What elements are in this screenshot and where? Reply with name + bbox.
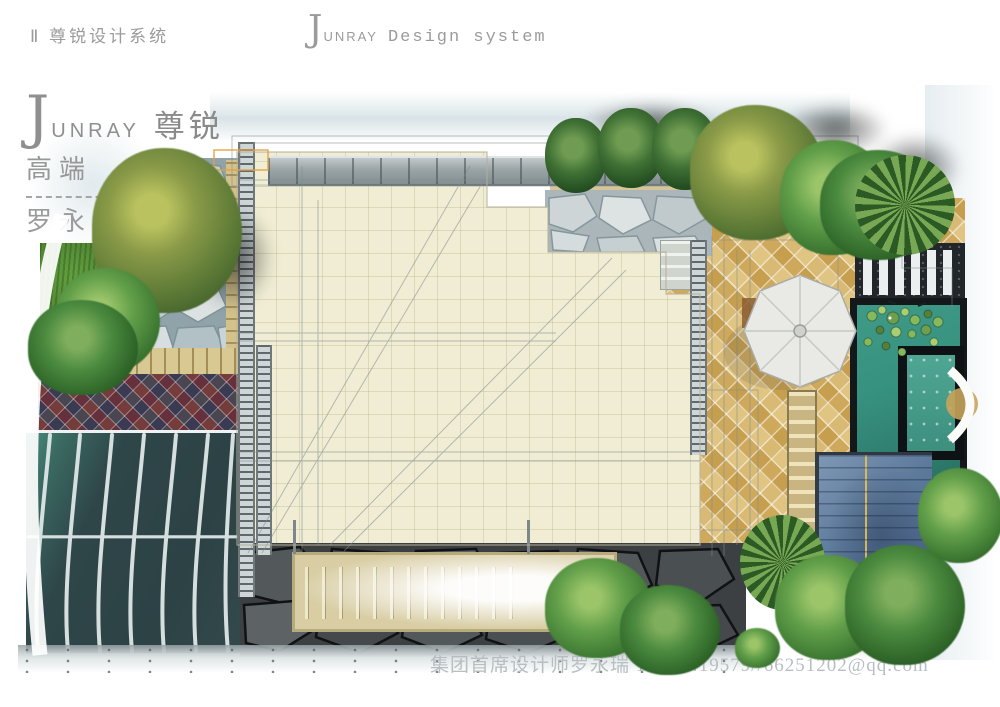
watermark-name: UNRAY	[51, 121, 140, 141]
tree	[620, 585, 720, 675]
stair-ladder	[256, 345, 272, 555]
glass-canopy	[26, 430, 240, 656]
shrub	[28, 300, 138, 395]
brand-initial: J	[308, 12, 322, 48]
watermark-initial: J	[26, 88, 49, 146]
watermark-cn-name: 尊锐	[154, 111, 224, 142]
brand-tagline: Design system	[388, 28, 547, 47]
brand-title: JUNRAY Design system	[308, 12, 547, 48]
brand-name: UNRAY	[323, 29, 378, 44]
spa-pool	[898, 346, 964, 460]
tree	[845, 545, 965, 665]
design-plan-page: Ⅱ 尊锐设计系统 JUNRAY Design system JUNRAY 尊锐 …	[0, 0, 1000, 707]
stair-ladder	[690, 240, 707, 455]
canopy-ribs	[26, 433, 240, 653]
railing-post	[527, 520, 530, 554]
system-label: Ⅱ 尊锐设计系统	[30, 22, 169, 47]
railing-post	[293, 520, 296, 554]
tree	[918, 468, 1000, 563]
shrub	[735, 628, 780, 668]
palm-plant	[855, 155, 955, 255]
